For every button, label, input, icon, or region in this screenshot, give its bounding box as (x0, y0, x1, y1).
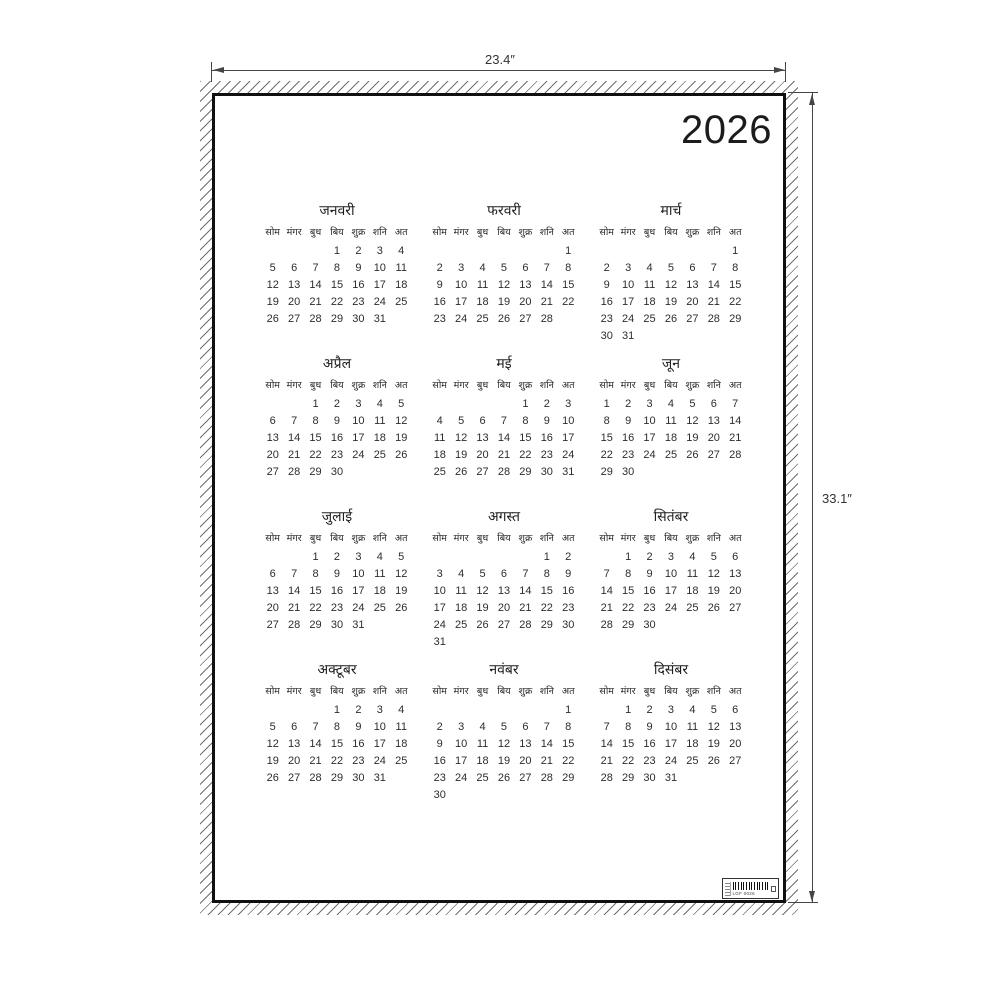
day-cell (450, 396, 471, 413)
day-cell: 2 (639, 702, 660, 719)
day-cell: 6 (515, 260, 536, 277)
width-dimension-line (212, 70, 786, 71)
week-row: 2930 (596, 464, 746, 481)
day-cell (493, 702, 514, 719)
day-cell (536, 702, 557, 719)
day-cell: 15 (617, 583, 638, 600)
day-cell (391, 617, 412, 634)
day-cell (472, 634, 493, 651)
day-cell: 30 (348, 770, 369, 787)
week-row: 11121314151617 (429, 430, 579, 447)
day-cell: 17 (660, 583, 681, 600)
weekday-header: सोम (596, 379, 617, 393)
day-cell: 24 (348, 600, 369, 617)
day-cell: 19 (262, 753, 283, 770)
day-cell: 29 (617, 617, 638, 634)
weekday-header: बिय (493, 226, 514, 240)
day-cell: 30 (617, 464, 638, 481)
day-cell: 22 (617, 753, 638, 770)
day-cell (472, 787, 493, 804)
day-cell: 10 (450, 277, 471, 294)
day-cell: 25 (682, 600, 703, 617)
day-cell: 14 (305, 736, 326, 753)
weekday-header: शनि (703, 685, 724, 699)
day-cell: 12 (682, 413, 703, 430)
day-cell: 15 (536, 583, 557, 600)
day-cell: 3 (617, 260, 638, 277)
week-row: 2345678 (429, 719, 579, 736)
day-cell: 15 (515, 430, 536, 447)
day-cell: 10 (558, 413, 579, 430)
weekday-header: शनि (536, 226, 557, 240)
day-cell (262, 549, 283, 566)
day-cell: 24 (558, 447, 579, 464)
day-cell: 6 (725, 549, 746, 566)
month-weeks: 1234567891011121314151617181920212223242… (262, 702, 412, 787)
day-cell (283, 549, 304, 566)
day-cell: 23 (429, 770, 450, 787)
day-cell: 20 (515, 753, 536, 770)
day-cell: 9 (536, 413, 557, 430)
weekday-header: बिय (660, 532, 681, 546)
day-cell: 31 (369, 770, 390, 787)
month-weeks: 1234567891011121314151617181920212223242… (596, 243, 746, 345)
day-cell: 7 (725, 396, 746, 413)
weekday-header: मंगर (283, 379, 304, 393)
day-cell: 7 (515, 566, 536, 583)
calendar-poster-mockup: 23.4″ 33.1″ 2026 जनवरी सोममंगरबुधबियशुक्… (0, 0, 1000, 1000)
day-cell: 14 (493, 430, 514, 447)
day-cell: 10 (369, 719, 390, 736)
weekday-header: शुक्र (515, 226, 536, 240)
week-row: 123 (429, 396, 579, 413)
day-cell: 22 (596, 447, 617, 464)
weekday-header: अत (391, 685, 412, 699)
day-cell: 7 (283, 413, 304, 430)
day-cell: 23 (558, 600, 579, 617)
day-cell: 22 (326, 294, 347, 311)
day-cell: 29 (305, 617, 326, 634)
day-cell: 2 (617, 396, 638, 413)
month-title: नवंबर (429, 659, 579, 679)
week-row: 2728293031 (262, 617, 412, 634)
day-cell: 2 (429, 260, 450, 277)
day-cell: 25 (472, 311, 493, 328)
day-cell: 6 (725, 702, 746, 719)
day-cell: 13 (493, 583, 514, 600)
week-row: 567891011 (262, 719, 412, 736)
week-row: 3456789 (429, 566, 579, 583)
day-cell: 25 (391, 753, 412, 770)
day-cell: 9 (326, 413, 347, 430)
weekday-header: सोम (262, 532, 283, 546)
day-cell: 18 (369, 583, 390, 600)
barcode-certification-box (771, 886, 777, 892)
day-cell (450, 549, 471, 566)
day-cell (725, 617, 746, 634)
barcode-code-text: LGF 0026 (733, 891, 755, 896)
weekday-header: मंगर (450, 685, 471, 699)
week-row: 6789101112 (262, 413, 412, 430)
height-dimension-label: 33.1″ (822, 491, 852, 506)
day-cell: 28 (305, 311, 326, 328)
day-cell: 16 (536, 430, 557, 447)
day-cell: 31 (429, 634, 450, 651)
day-cell: 14 (703, 277, 724, 294)
day-cell: 20 (515, 294, 536, 311)
day-cell: 3 (450, 719, 471, 736)
day-cell (639, 243, 660, 260)
week-row: 1 (596, 243, 746, 260)
day-cell: 19 (703, 736, 724, 753)
day-cell: 25 (391, 294, 412, 311)
weekday-header-row: सोममंगरबुधबियशुक्रशनिअत (262, 226, 412, 240)
week-row: 18192021222324 (429, 447, 579, 464)
weekday-header-row: सोममंगरबुधबियशुक्रशनिअत (596, 532, 746, 546)
day-cell: 14 (536, 736, 557, 753)
week-row: 9101112131415 (596, 277, 746, 294)
day-cell: 8 (617, 566, 638, 583)
day-cell: 6 (515, 719, 536, 736)
weekday-header: शुक्र (348, 226, 369, 240)
month-weeks: 1234567891011121314151617181920212223242… (596, 396, 746, 481)
month-title: अक्टूबर (262, 659, 412, 679)
week-row: 28293031 (596, 770, 746, 787)
day-cell: 28 (536, 770, 557, 787)
day-cell: 10 (429, 583, 450, 600)
day-cell: 19 (682, 430, 703, 447)
weekday-header: बिय (326, 379, 347, 393)
week-row: 30 (429, 787, 579, 804)
weekday-header: अत (558, 379, 579, 393)
weekday-header: मंगर (617, 685, 638, 699)
day-cell: 13 (725, 719, 746, 736)
day-cell: 1 (515, 396, 536, 413)
week-row: 9101112131415 (429, 736, 579, 753)
day-cell: 24 (450, 311, 471, 328)
day-cell (262, 702, 283, 719)
day-cell: 20 (703, 430, 724, 447)
day-cell: 7 (596, 566, 617, 583)
day-cell: 2 (536, 396, 557, 413)
day-cell: 15 (596, 430, 617, 447)
weekday-header: अत (391, 379, 412, 393)
weekday-header: बिय (660, 379, 681, 393)
weekday-header-row: सोममंगरबुधबियशुक्रशनिअत (596, 226, 746, 240)
day-cell: 17 (348, 430, 369, 447)
weekday-header-row: सोममंगरबुधबियशुक्रशनिअत (429, 685, 579, 699)
day-cell: 2 (596, 260, 617, 277)
day-cell: 15 (305, 430, 326, 447)
weekday-header: अत (391, 226, 412, 240)
day-cell: 9 (348, 260, 369, 277)
day-cell: 10 (639, 413, 660, 430)
day-cell: 14 (596, 736, 617, 753)
weekday-header: मंगर (283, 685, 304, 699)
day-cell: 18 (639, 294, 660, 311)
day-cell: 23 (639, 753, 660, 770)
weekday-header: बिय (326, 226, 347, 240)
barcode-icon (733, 882, 769, 890)
day-cell: 4 (369, 549, 390, 566)
day-cell: 11 (660, 413, 681, 430)
weekday-header: शुक्र (348, 379, 369, 393)
day-cell: 22 (515, 447, 536, 464)
weekday-header: शनि (536, 532, 557, 546)
week-row: 13141516171819 (262, 430, 412, 447)
day-cell: 9 (326, 566, 347, 583)
day-cell: 30 (536, 464, 557, 481)
weekday-header: बुध (639, 532, 660, 546)
day-cell: 12 (262, 736, 283, 753)
day-cell: 9 (596, 277, 617, 294)
weekday-header: शनि (369, 226, 390, 240)
day-cell (515, 549, 536, 566)
weekday-header: बुध (472, 379, 493, 393)
day-cell: 22 (558, 294, 579, 311)
weekday-header: शुक्र (515, 685, 536, 699)
month-title: फरवरी (429, 200, 579, 220)
day-cell: 10 (617, 277, 638, 294)
day-cell: 17 (617, 294, 638, 311)
day-cell: 19 (450, 447, 471, 464)
weekday-header: बिय (326, 532, 347, 546)
dimension-arrowhead-down-icon (809, 891, 815, 902)
day-cell: 7 (596, 719, 617, 736)
day-cell (515, 787, 536, 804)
day-cell: 14 (725, 413, 746, 430)
week-row: 282930 (596, 617, 746, 634)
weekday-header: बुध (472, 532, 493, 546)
day-cell: 27 (515, 770, 536, 787)
day-cell: 11 (472, 277, 493, 294)
day-cell: 24 (617, 311, 638, 328)
day-cell: 12 (262, 277, 283, 294)
day-cell: 4 (472, 719, 493, 736)
day-cell (703, 617, 724, 634)
day-cell: 26 (450, 464, 471, 481)
day-cell: 15 (558, 277, 579, 294)
day-cell: 22 (725, 294, 746, 311)
day-cell: 6 (682, 260, 703, 277)
day-cell: 21 (536, 753, 557, 770)
day-cell: 12 (703, 566, 724, 583)
day-cell: 24 (450, 770, 471, 787)
day-cell: 21 (283, 447, 304, 464)
day-cell: 11 (450, 583, 471, 600)
day-cell (493, 243, 514, 260)
weekday-header: बुध (305, 685, 326, 699)
day-cell: 5 (493, 260, 514, 277)
day-cell: 10 (369, 260, 390, 277)
day-cell (493, 634, 514, 651)
day-cell: 16 (348, 277, 369, 294)
day-cell (472, 702, 493, 719)
day-cell: 5 (391, 396, 412, 413)
day-cell: 11 (391, 260, 412, 277)
day-cell: 3 (639, 396, 660, 413)
day-cell: 19 (493, 753, 514, 770)
week-row: 891011121314 (596, 413, 746, 430)
week-row: 14151617181920 (596, 736, 746, 753)
month-weeks: 1234567891011121314151617181920212223242… (262, 396, 412, 481)
weekday-header: मंगर (450, 379, 471, 393)
day-cell (429, 549, 450, 566)
month-weeks: 1234567891011121314151617181920212223242… (596, 549, 746, 634)
day-cell: 30 (348, 311, 369, 328)
calendar-grid: जनवरी सोममंगरबुधबियशुक्रशनिअत 1234567891… (262, 200, 746, 801)
day-cell: 1 (305, 396, 326, 413)
week-row: 2345678 (596, 260, 746, 277)
day-cell: 6 (493, 566, 514, 583)
day-cell: 3 (429, 566, 450, 583)
week-row: 21222324252627 (596, 600, 746, 617)
height-extension-tick-bottom (788, 902, 818, 903)
day-cell: 12 (391, 413, 412, 430)
day-cell: 10 (450, 736, 471, 753)
day-cell (472, 396, 493, 413)
week-row: 15161718192021 (596, 430, 746, 447)
day-cell: 11 (369, 413, 390, 430)
day-cell (558, 311, 579, 328)
week-row: 19202122232425 (262, 294, 412, 311)
weekday-header: अत (558, 685, 579, 699)
weekday-header: सोम (429, 226, 450, 240)
day-cell: 24 (369, 294, 390, 311)
weekday-header: अत (725, 532, 746, 546)
weekday-header: बिय (326, 685, 347, 699)
day-cell: 29 (596, 464, 617, 481)
month-block: मई सोममंगरबुधबियशुक्रशनिअत 1234567891011… (429, 353, 579, 495)
day-cell: 6 (283, 260, 304, 277)
day-cell: 4 (450, 566, 471, 583)
weekday-header: अत (725, 685, 746, 699)
day-cell: 26 (472, 617, 493, 634)
weekday-header: शनि (369, 379, 390, 393)
day-cell: 18 (682, 583, 703, 600)
day-cell: 21 (703, 294, 724, 311)
month-title: अगस्त (429, 506, 579, 526)
day-cell: 21 (725, 430, 746, 447)
day-cell: 22 (305, 447, 326, 464)
day-cell: 26 (493, 770, 514, 787)
day-cell (391, 464, 412, 481)
week-row: 16171819202122 (429, 294, 579, 311)
day-cell: 1 (558, 702, 579, 719)
day-cell: 23 (596, 311, 617, 328)
day-cell: 26 (262, 770, 283, 787)
weekday-header: बुध (472, 226, 493, 240)
month-block: सितंबर सोममंगरबुधबियशुक्रशनिअत 123456789… (596, 506, 746, 648)
day-cell: 27 (682, 311, 703, 328)
day-cell: 6 (472, 413, 493, 430)
day-cell: 18 (429, 447, 450, 464)
day-cell: 24 (348, 447, 369, 464)
day-cell: 5 (262, 719, 283, 736)
day-cell: 29 (305, 464, 326, 481)
day-cell: 8 (536, 566, 557, 583)
day-cell (262, 243, 283, 260)
week-row: 19202122232425 (262, 753, 412, 770)
day-cell: 25 (660, 447, 681, 464)
day-cell: 14 (596, 583, 617, 600)
day-cell: 1 (326, 243, 347, 260)
day-cell: 29 (617, 770, 638, 787)
month-weeks: 1234567891011121314151617181920212223242… (596, 702, 746, 787)
day-cell: 13 (515, 277, 536, 294)
day-cell: 7 (305, 260, 326, 277)
barcode-side-text (725, 882, 731, 896)
day-cell (536, 243, 557, 260)
day-cell: 12 (391, 566, 412, 583)
weekday-header: शनि (703, 379, 724, 393)
day-cell (725, 770, 746, 787)
day-cell: 13 (262, 583, 283, 600)
day-cell: 27 (262, 617, 283, 634)
day-cell: 9 (639, 566, 660, 583)
week-row: 9101112131415 (429, 277, 579, 294)
day-cell (703, 464, 724, 481)
day-cell: 19 (391, 583, 412, 600)
day-cell (596, 549, 617, 566)
day-cell: 6 (703, 396, 724, 413)
day-cell: 23 (326, 447, 347, 464)
day-cell: 19 (262, 294, 283, 311)
month-block: अप्रैल सोममंगरबुधबियशुक्रशनिअत 123456789… (262, 353, 412, 495)
day-cell: 3 (369, 702, 390, 719)
weekday-header: शुक्र (682, 532, 703, 546)
month-title: अप्रैल (262, 353, 412, 373)
day-cell: 20 (493, 600, 514, 617)
day-cell: 26 (391, 600, 412, 617)
day-cell: 22 (326, 753, 347, 770)
weekday-header: शुक्र (348, 685, 369, 699)
weekday-header: सोम (429, 379, 450, 393)
day-cell: 21 (305, 753, 326, 770)
day-cell: 2 (639, 549, 660, 566)
month-title: मई (429, 353, 579, 373)
day-cell: 8 (326, 719, 347, 736)
day-cell: 17 (429, 600, 450, 617)
day-cell: 19 (472, 600, 493, 617)
day-cell (536, 787, 557, 804)
day-cell: 7 (283, 566, 304, 583)
day-cell: 21 (596, 753, 617, 770)
day-cell (660, 243, 681, 260)
day-cell: 27 (493, 617, 514, 634)
weekday-header-row: सोममंगरबुधबियशुक्रशनिअत (596, 685, 746, 699)
week-row: 13141516171819 (262, 583, 412, 600)
day-cell: 24 (660, 600, 681, 617)
week-row: 3031 (596, 328, 746, 345)
day-cell (305, 243, 326, 260)
day-cell (725, 328, 746, 345)
day-cell: 23 (348, 753, 369, 770)
month-title: दिसंबर (596, 659, 746, 679)
day-cell: 27 (472, 464, 493, 481)
week-row: 1234567 (596, 396, 746, 413)
week-row: 23242526272829 (429, 770, 579, 787)
day-cell: 11 (472, 736, 493, 753)
day-cell: 14 (305, 277, 326, 294)
weekday-header: बिय (660, 685, 681, 699)
week-row: 1234 (262, 702, 412, 719)
day-cell: 17 (660, 736, 681, 753)
day-cell: 27 (283, 311, 304, 328)
week-row: 123456 (596, 702, 746, 719)
day-cell: 3 (558, 396, 579, 413)
day-cell: 1 (326, 702, 347, 719)
